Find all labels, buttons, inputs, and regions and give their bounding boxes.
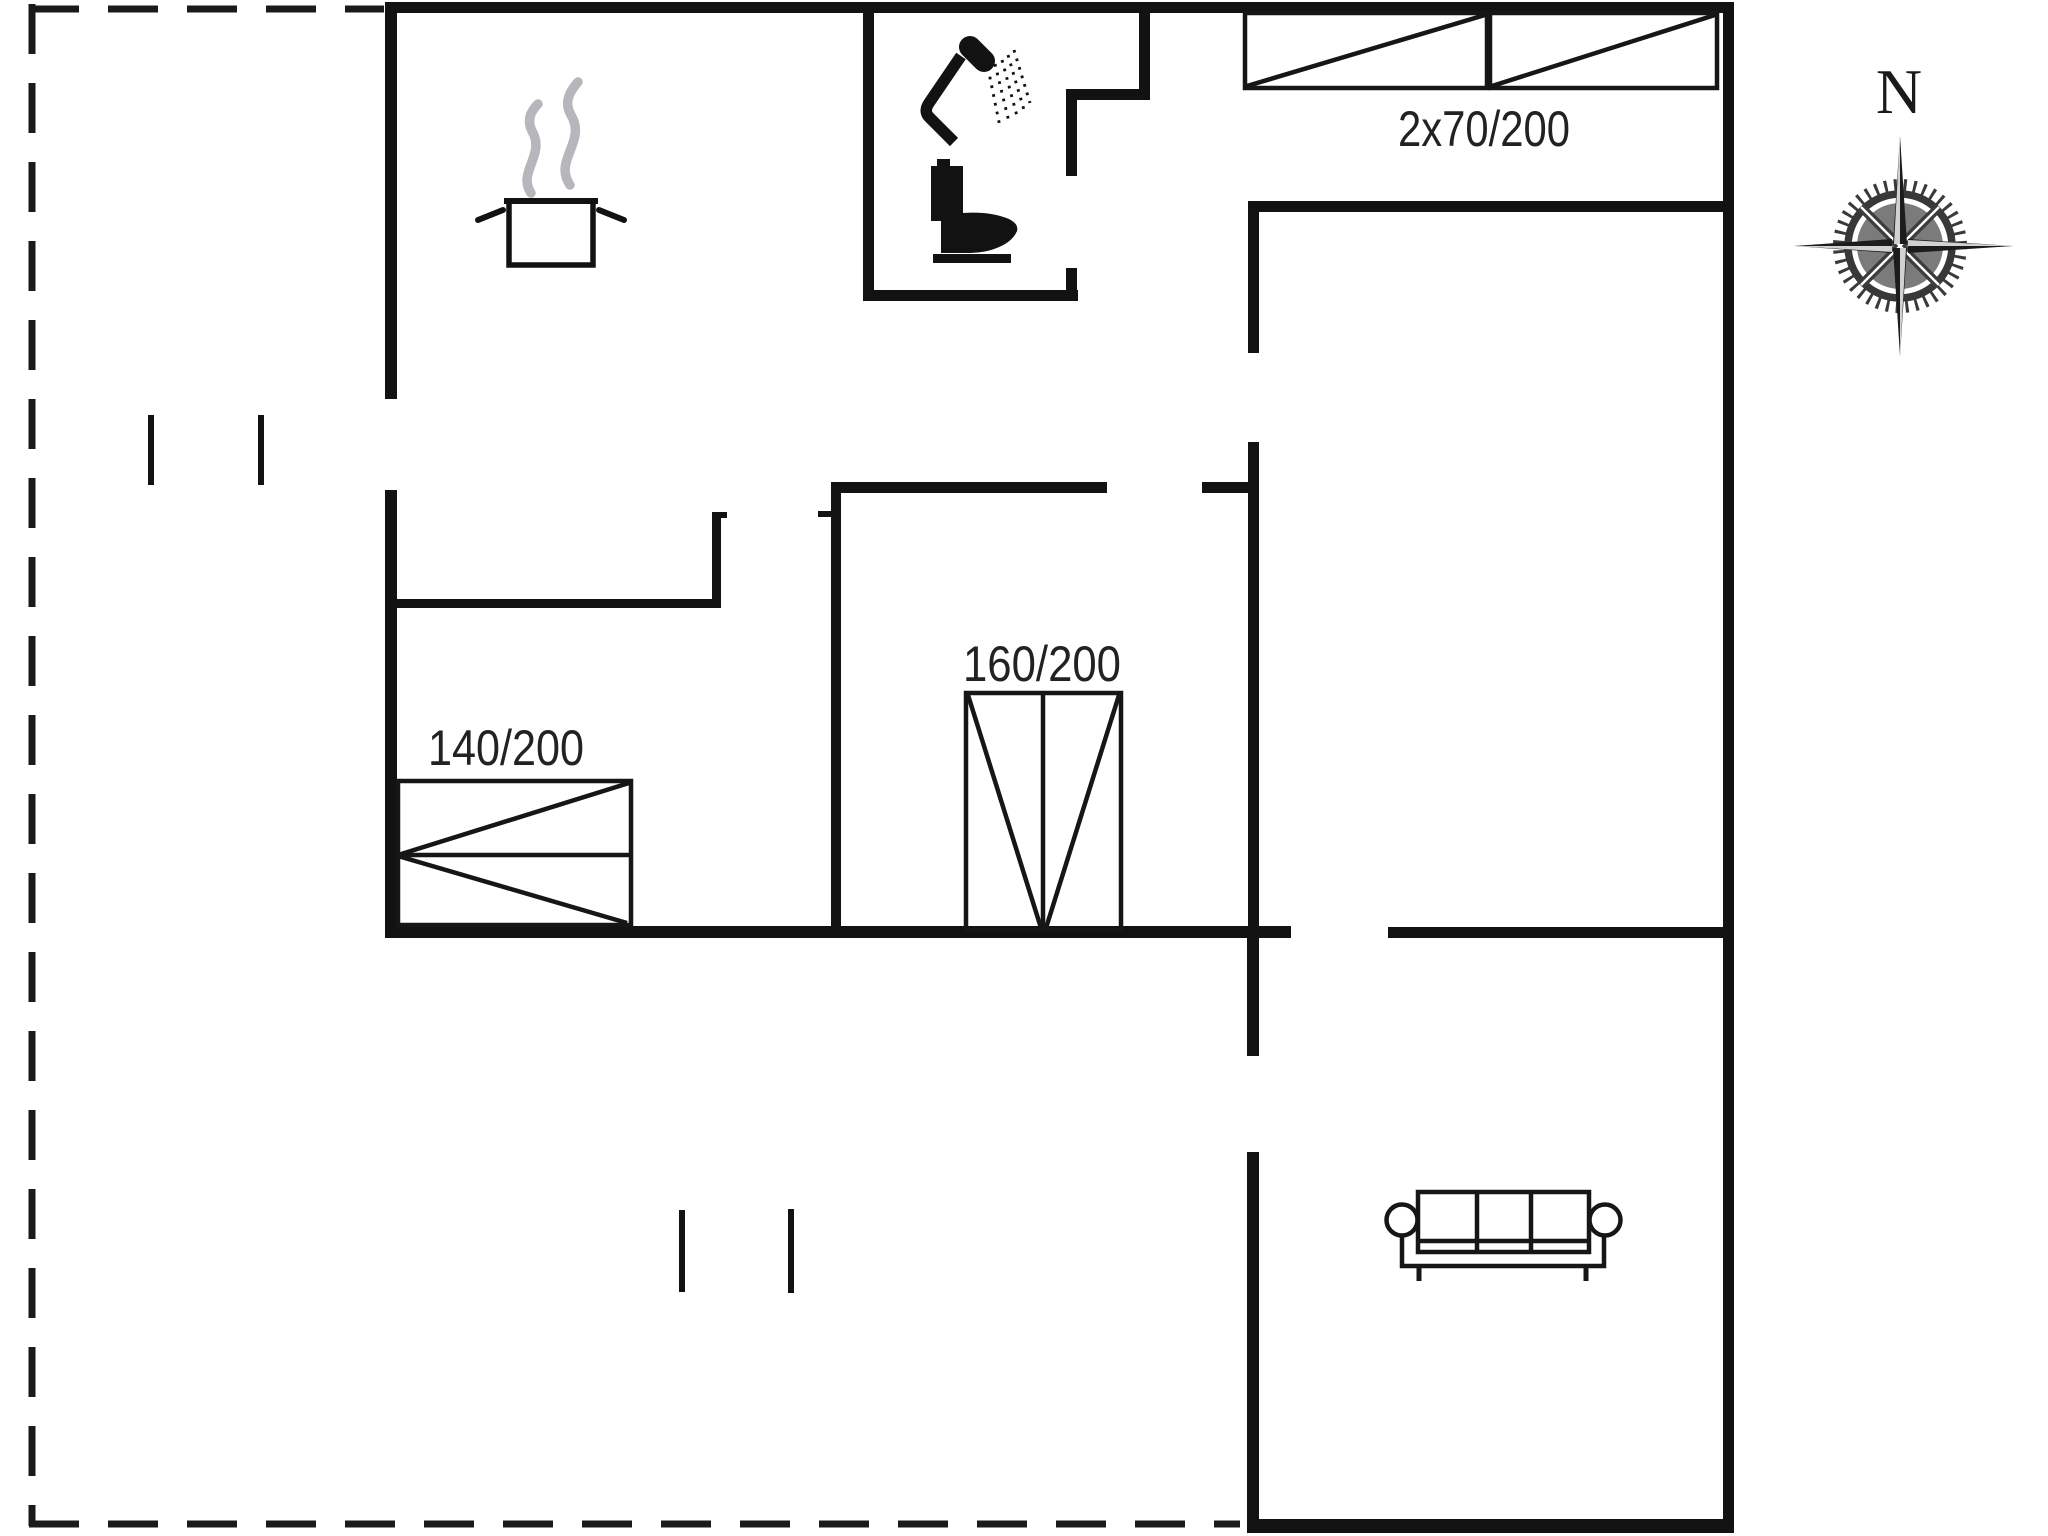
svg-text:160/200: 160/200 — [963, 636, 1121, 692]
svg-text:N: N — [1876, 56, 1922, 127]
svg-text:140/200: 140/200 — [428, 720, 584, 776]
svg-text:2x70/200: 2x70/200 — [1398, 101, 1570, 157]
